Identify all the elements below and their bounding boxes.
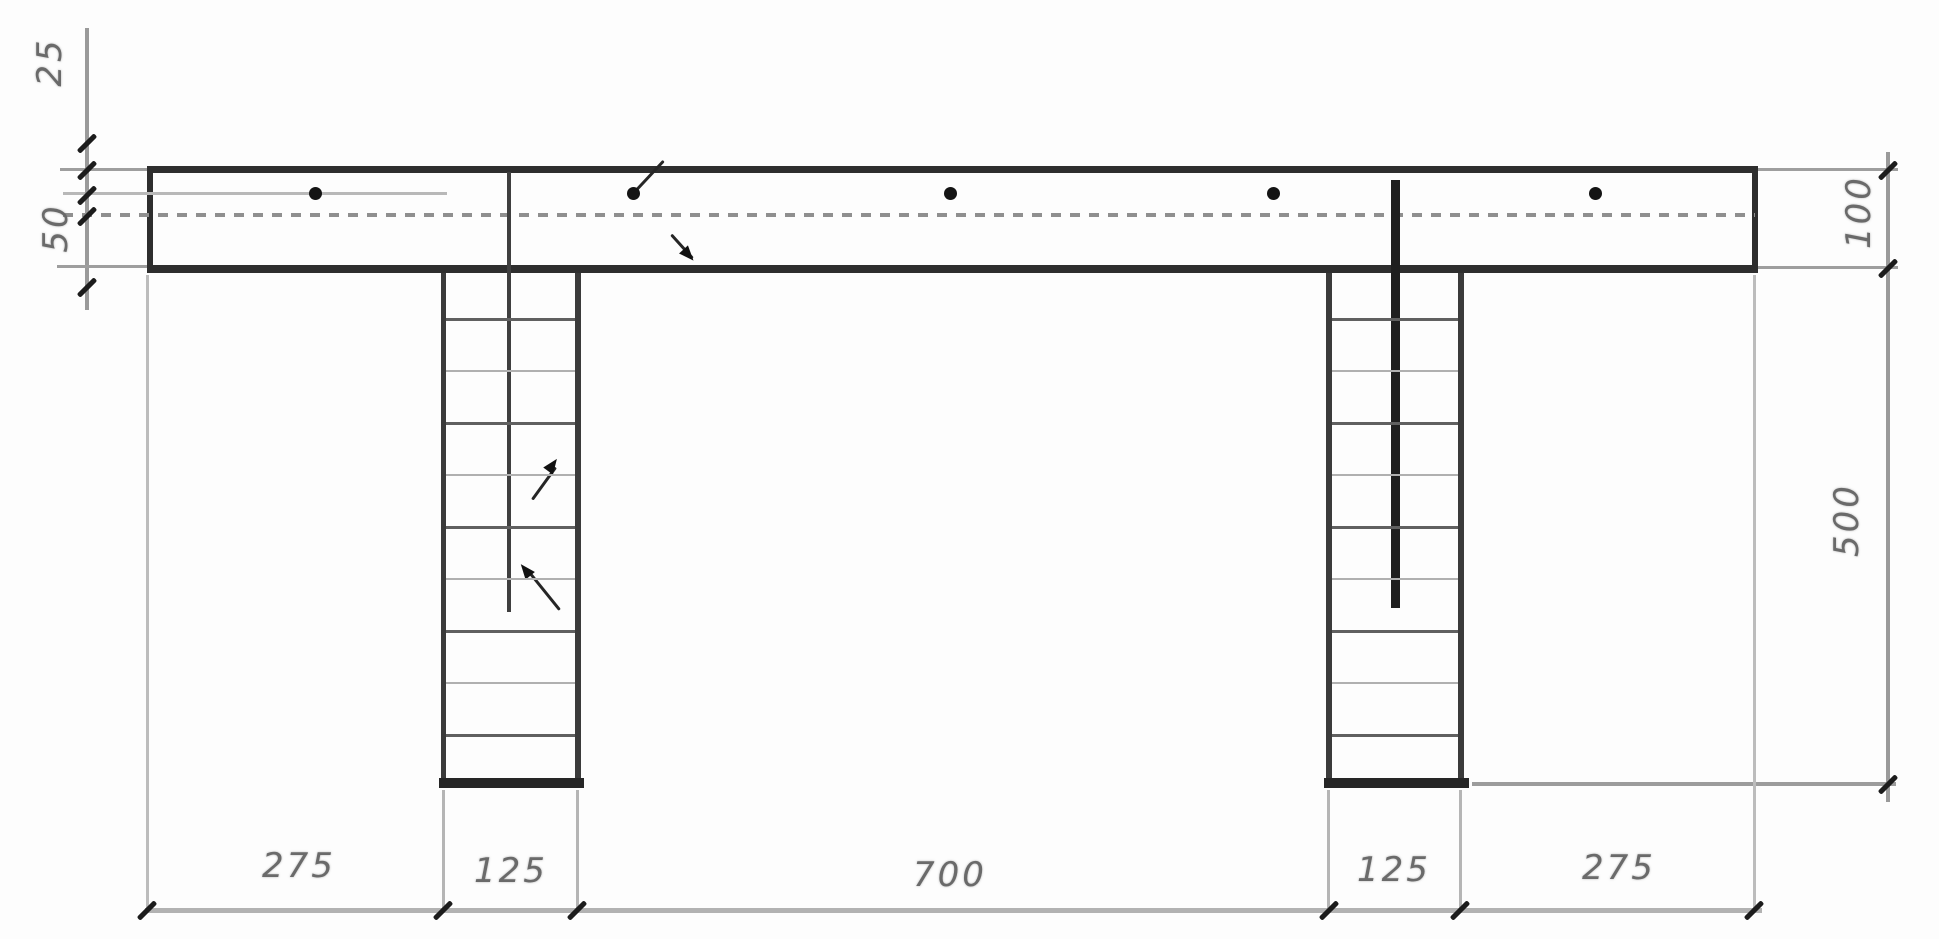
- left-web-rebar-line: [507, 172, 511, 612]
- stirrup-line: [446, 474, 575, 476]
- left-web-right-edge: [575, 273, 581, 782]
- right-web-rebar-bar: [1391, 180, 1400, 608]
- ext-right-web-right-down: [1459, 790, 1462, 910]
- dim-label-bottom-125b: 125: [1357, 850, 1431, 890]
- stirrup-line: [446, 526, 575, 529]
- stirrup-line: [1332, 318, 1458, 321]
- stirrup-line: [446, 734, 575, 737]
- rebar-dot: [627, 187, 640, 200]
- slab-axis-dashed-line: [63, 213, 1755, 217]
- dim-label-bottom-275a: 275: [262, 846, 336, 886]
- stirrup-line: [446, 578, 575, 580]
- right-extension-web-bottom: [1472, 782, 1896, 786]
- right-extension-slab-top: [1758, 168, 1898, 171]
- left-extension-slab-bottom: [57, 265, 147, 268]
- slab-bottom-edge: [147, 265, 1758, 273]
- bottom-dimension-line: [145, 908, 1762, 913]
- slab-dot-leader-line: [635, 160, 664, 191]
- stirrup-line: [1332, 734, 1458, 737]
- right-web-right-edge: [1458, 273, 1464, 782]
- slab-right-edge: [1752, 166, 1758, 273]
- stirrup-line: [1332, 370, 1458, 372]
- left-web-bottom-edge: [439, 778, 584, 788]
- ext-slab-left-down: [146, 275, 149, 910]
- stirrup-line: [446, 630, 575, 633]
- slab-left-edge: [147, 166, 153, 273]
- dim-label-right-500: 500: [1827, 483, 1867, 557]
- stirrup-line: [1332, 630, 1458, 633]
- stirrup-line: [446, 422, 575, 425]
- stirrup-line: [1332, 474, 1458, 476]
- stirrup-line: [1332, 682, 1458, 684]
- stirrup-line: [446, 682, 575, 684]
- stirrup-line: [1332, 422, 1458, 425]
- left-web-leader-arrowhead-upper: [543, 455, 562, 474]
- dim-label-bottom-125a: 125: [474, 851, 548, 891]
- right-web-bottom-edge: [1324, 778, 1469, 788]
- dim-label-left-25: 25: [30, 37, 70, 86]
- engineering-drawing-canvas: 25 50 100 500 275 125 700 125 275: [0, 0, 1939, 939]
- stirrup-line: [1332, 526, 1458, 529]
- ext-left-web-left-down: [442, 790, 445, 910]
- dim-label-bottom-275b: 275: [1582, 848, 1656, 888]
- rebar-dot: [309, 187, 322, 200]
- dim-label-left-50: 50: [36, 203, 76, 252]
- stirrup-line: [1332, 578, 1458, 580]
- dim-label-bottom-700: 700: [913, 855, 987, 895]
- rebar-dot: [1267, 187, 1280, 200]
- dim-label-right-100: 100: [1839, 175, 1879, 249]
- ext-left-web-right-down: [576, 790, 579, 910]
- slab-top-edge: [147, 166, 1758, 173]
- rebar-dot: [1589, 187, 1602, 200]
- stirrup-line: [446, 318, 575, 321]
- left-extension-slab-top: [60, 168, 147, 171]
- ext-right-web-left-down: [1327, 790, 1330, 910]
- right-extension-slab-bottom: [1758, 266, 1898, 269]
- ext-slab-right-down: [1753, 275, 1756, 910]
- stirrup-line: [446, 370, 575, 372]
- left-web-leader-line-lower: [527, 570, 561, 611]
- top-rebar-level-line: [63, 192, 447, 195]
- right-dimension-line: [1886, 152, 1890, 802]
- rebar-dot: [944, 187, 957, 200]
